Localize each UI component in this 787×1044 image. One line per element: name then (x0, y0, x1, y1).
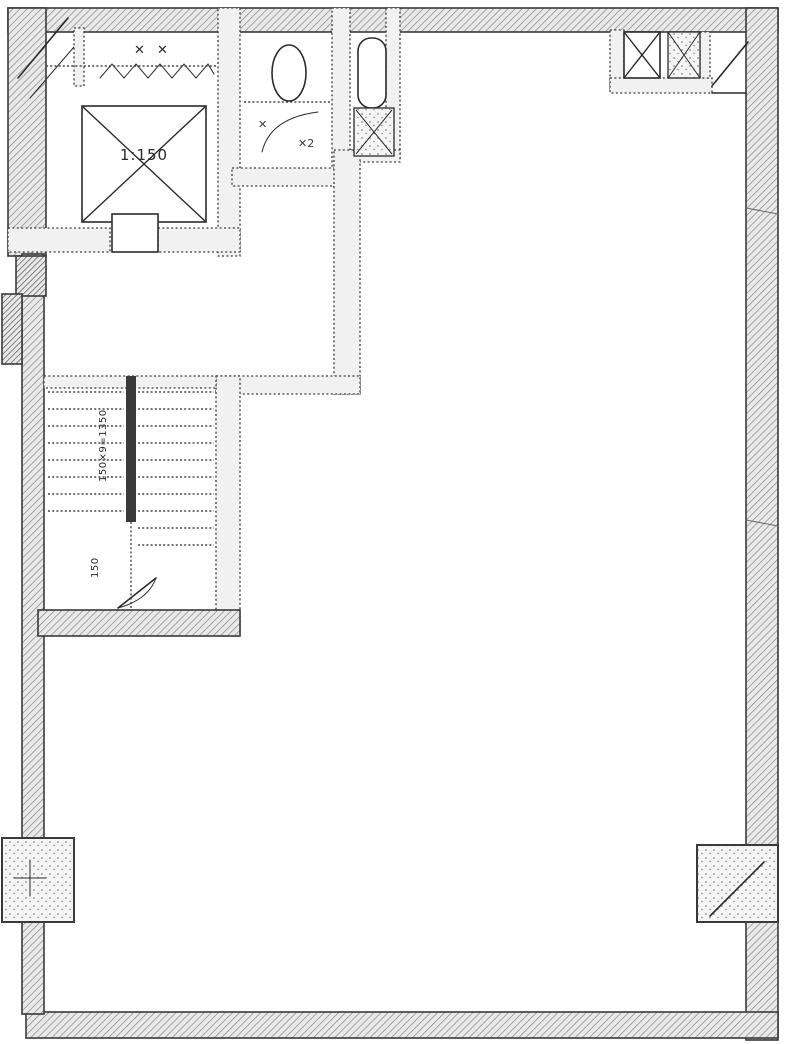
pipe-duct-capsule (358, 38, 386, 108)
column-bottom-left (2, 838, 74, 922)
stair-door-swing (118, 578, 156, 608)
machine-room: ✕ ✕ 1:150 (46, 43, 218, 252)
floor-plan-page: ✕ ✕ 1:150 ✕ ✕2 (0, 0, 787, 1044)
floor-plan-drawing: ✕ ✕ 1:150 ✕ ✕2 (0, 0, 787, 1044)
wall-left-window-tick (2, 294, 22, 364)
elevator-car-2 (668, 32, 700, 78)
machine-room-marks: ✕ ✕ (134, 43, 172, 58)
core-vertical-wall (334, 150, 360, 394)
machine-room-partition (74, 28, 84, 86)
duct-box (354, 108, 394, 156)
stair-east-wall (216, 376, 240, 636)
interior-walls (8, 8, 400, 636)
bathroom: ✕ ✕2 (244, 45, 332, 152)
wall-left-joint-block (16, 256, 46, 296)
stair-landing-dimension: 150 (90, 557, 101, 578)
toilet-fixture (272, 45, 306, 101)
bathroom-mark-b: ✕2 (298, 137, 314, 150)
wall-left-upper (8, 8, 46, 256)
stair-run-dimension: 150×9=1350 (98, 409, 109, 482)
stair-south-wall (38, 610, 240, 636)
stair-treads-left-flight (48, 392, 124, 511)
elevator-bank-south-wall (610, 78, 712, 93)
machine-room-south-wall-left (8, 228, 110, 252)
structural-columns (2, 838, 778, 922)
bathroom-mark-a: ✕ (258, 118, 267, 131)
staircase: 150×9=1350 150 (48, 376, 214, 608)
machine-room-door-leaf (112, 214, 158, 252)
elevator-shaft: 1:150 (82, 106, 206, 222)
elevator-bank (610, 30, 748, 93)
room-bottom-right (697, 845, 778, 922)
elevator-car-1 (624, 32, 660, 78)
stair-treads-right-flight (138, 392, 214, 545)
stair-stringer-wall (126, 376, 136, 522)
elevator-bank-east-stub (700, 32, 710, 78)
shaft-scale-label: 1:150 (120, 146, 168, 164)
corner-door-swing (712, 42, 748, 86)
bathroom-south-wall (232, 168, 350, 186)
machine-room-east-wall (218, 8, 240, 256)
wall-bottom (26, 1012, 778, 1038)
machine-room-south-wall-right (158, 228, 240, 252)
